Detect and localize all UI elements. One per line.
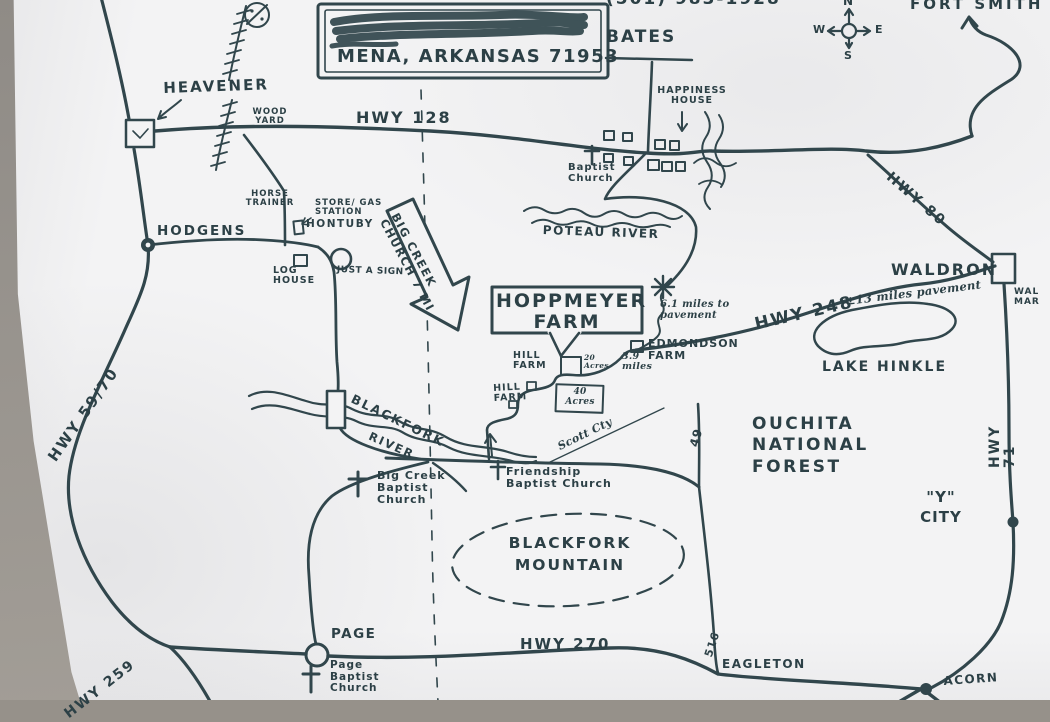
ouachita-forest-label: OUCHITA NATIONAL FOREST: [752, 414, 902, 478]
town-label-hodgens: HODGENS: [157, 224, 246, 239]
y-city-dot-marker: [1008, 517, 1019, 528]
poi-label-wood-yard: WOOD YARD: [248, 108, 292, 127]
miles-3-9-label: 3.9 miles: [622, 352, 658, 373]
dashed-county-line: [421, 90, 438, 700]
poi-label-log-house: LOG HOUSE: [273, 266, 319, 287]
friendship-church-label: Friendship Baptist Church: [506, 466, 622, 490]
road-hwy-59-70: [68, 0, 170, 647]
poi-label-horse-trainer: HORSE TRAINER: [244, 190, 296, 209]
poi-label-happiness-house: HAPPINESS HOUSE: [652, 86, 732, 107]
poi-label-hontuby: HONTUBY: [306, 219, 374, 231]
road-to-fort-smith: [962, 17, 1020, 136]
circled-crossing-symbol: [245, 3, 269, 27]
phone-number-partial: (501) 983-1928: [606, 0, 781, 9]
road-hwy-259: [170, 647, 211, 700]
page-circle-marker: [306, 644, 328, 666]
heavener-marker: [126, 100, 181, 147]
hwy-71-label: HWY 71: [988, 406, 1019, 468]
hwy-128-label: HWY 128: [356, 109, 452, 127]
wetland-curls: [694, 158, 736, 184]
acorn-dot-marker: [920, 683, 932, 695]
town-label-eagleton: EAGLETON: [722, 658, 806, 671]
poi-label-wal-mar: WAL MAR: [1014, 288, 1050, 308]
poteau-river-line: [524, 207, 682, 219]
creek-line: [702, 112, 712, 209]
acres-20-square: [561, 357, 581, 375]
road-hwy-270: [170, 647, 941, 700]
compass-rose-icon: [828, 9, 870, 48]
hwy-270-label: HWY 270: [520, 636, 611, 653]
edmondson-farm-label: EDMONDSON FARM: [648, 338, 740, 362]
town-label-fort-smith: FORT SMITH: [910, 0, 1043, 13]
hill-farm-label-2: HILL FARM: [493, 382, 532, 405]
happiness-house-arrow-icon: [678, 112, 687, 131]
acres-40-label: 40 Acres: [562, 388, 598, 408]
blackfork-mountain-label: BLACKFORK MOUNTAIN: [503, 533, 637, 576]
road-hwy-128: [155, 126, 972, 153]
page-baptist-cross-icon: [303, 666, 319, 692]
hill-farm-label-1: HILL FARM: [513, 351, 551, 372]
road-hodgens-east: [148, 239, 318, 247]
junction-star-marker: [652, 276, 674, 298]
compass-n: N: [843, 0, 854, 8]
town-label-waldron: WALDRON: [891, 261, 997, 279]
road-hwy-71-south: [931, 284, 1014, 688]
y-city-label: "Y" CITY: [912, 488, 970, 527]
compass-s: S: [844, 50, 853, 62]
town-label-page: PAGE: [331, 627, 376, 642]
scribbled-out-name: [332, 15, 584, 46]
hand-drawn-map-photo: (501) 983-1928 MENA, ARKANSAS 71953 BATE…: [0, 0, 1050, 700]
poi-label-baptist-church: Baptist Church: [568, 162, 620, 184]
bridge-marker: [327, 391, 345, 428]
lake-hinkle-label: LAKE HINKLE: [822, 360, 947, 375]
friendship-baptist-cross-icon: [491, 461, 505, 479]
poi-label-store-gas: STORE/ GAS STATION: [315, 199, 397, 218]
town-label-heavener: HEAVENER: [163, 76, 269, 96]
big-creek-church-label: Big Creek Baptist Church: [377, 470, 455, 506]
compass-w: W: [813, 24, 826, 36]
address-city-line: MENA, ARKANSAS 71953: [337, 47, 619, 67]
hodgens-dot-marker: [141, 238, 155, 252]
acres-20-label: 20 Acres: [584, 354, 614, 371]
town-label-bates: BATES: [606, 28, 676, 47]
miles-6-1-label: 6.1 miles to pavement: [660, 299, 738, 321]
hoppmeyer-farm-label: HOPPMEYER FARM: [496, 291, 638, 333]
page-church-label: Page Baptist Church: [330, 660, 386, 695]
compass-e: E: [875, 24, 884, 36]
